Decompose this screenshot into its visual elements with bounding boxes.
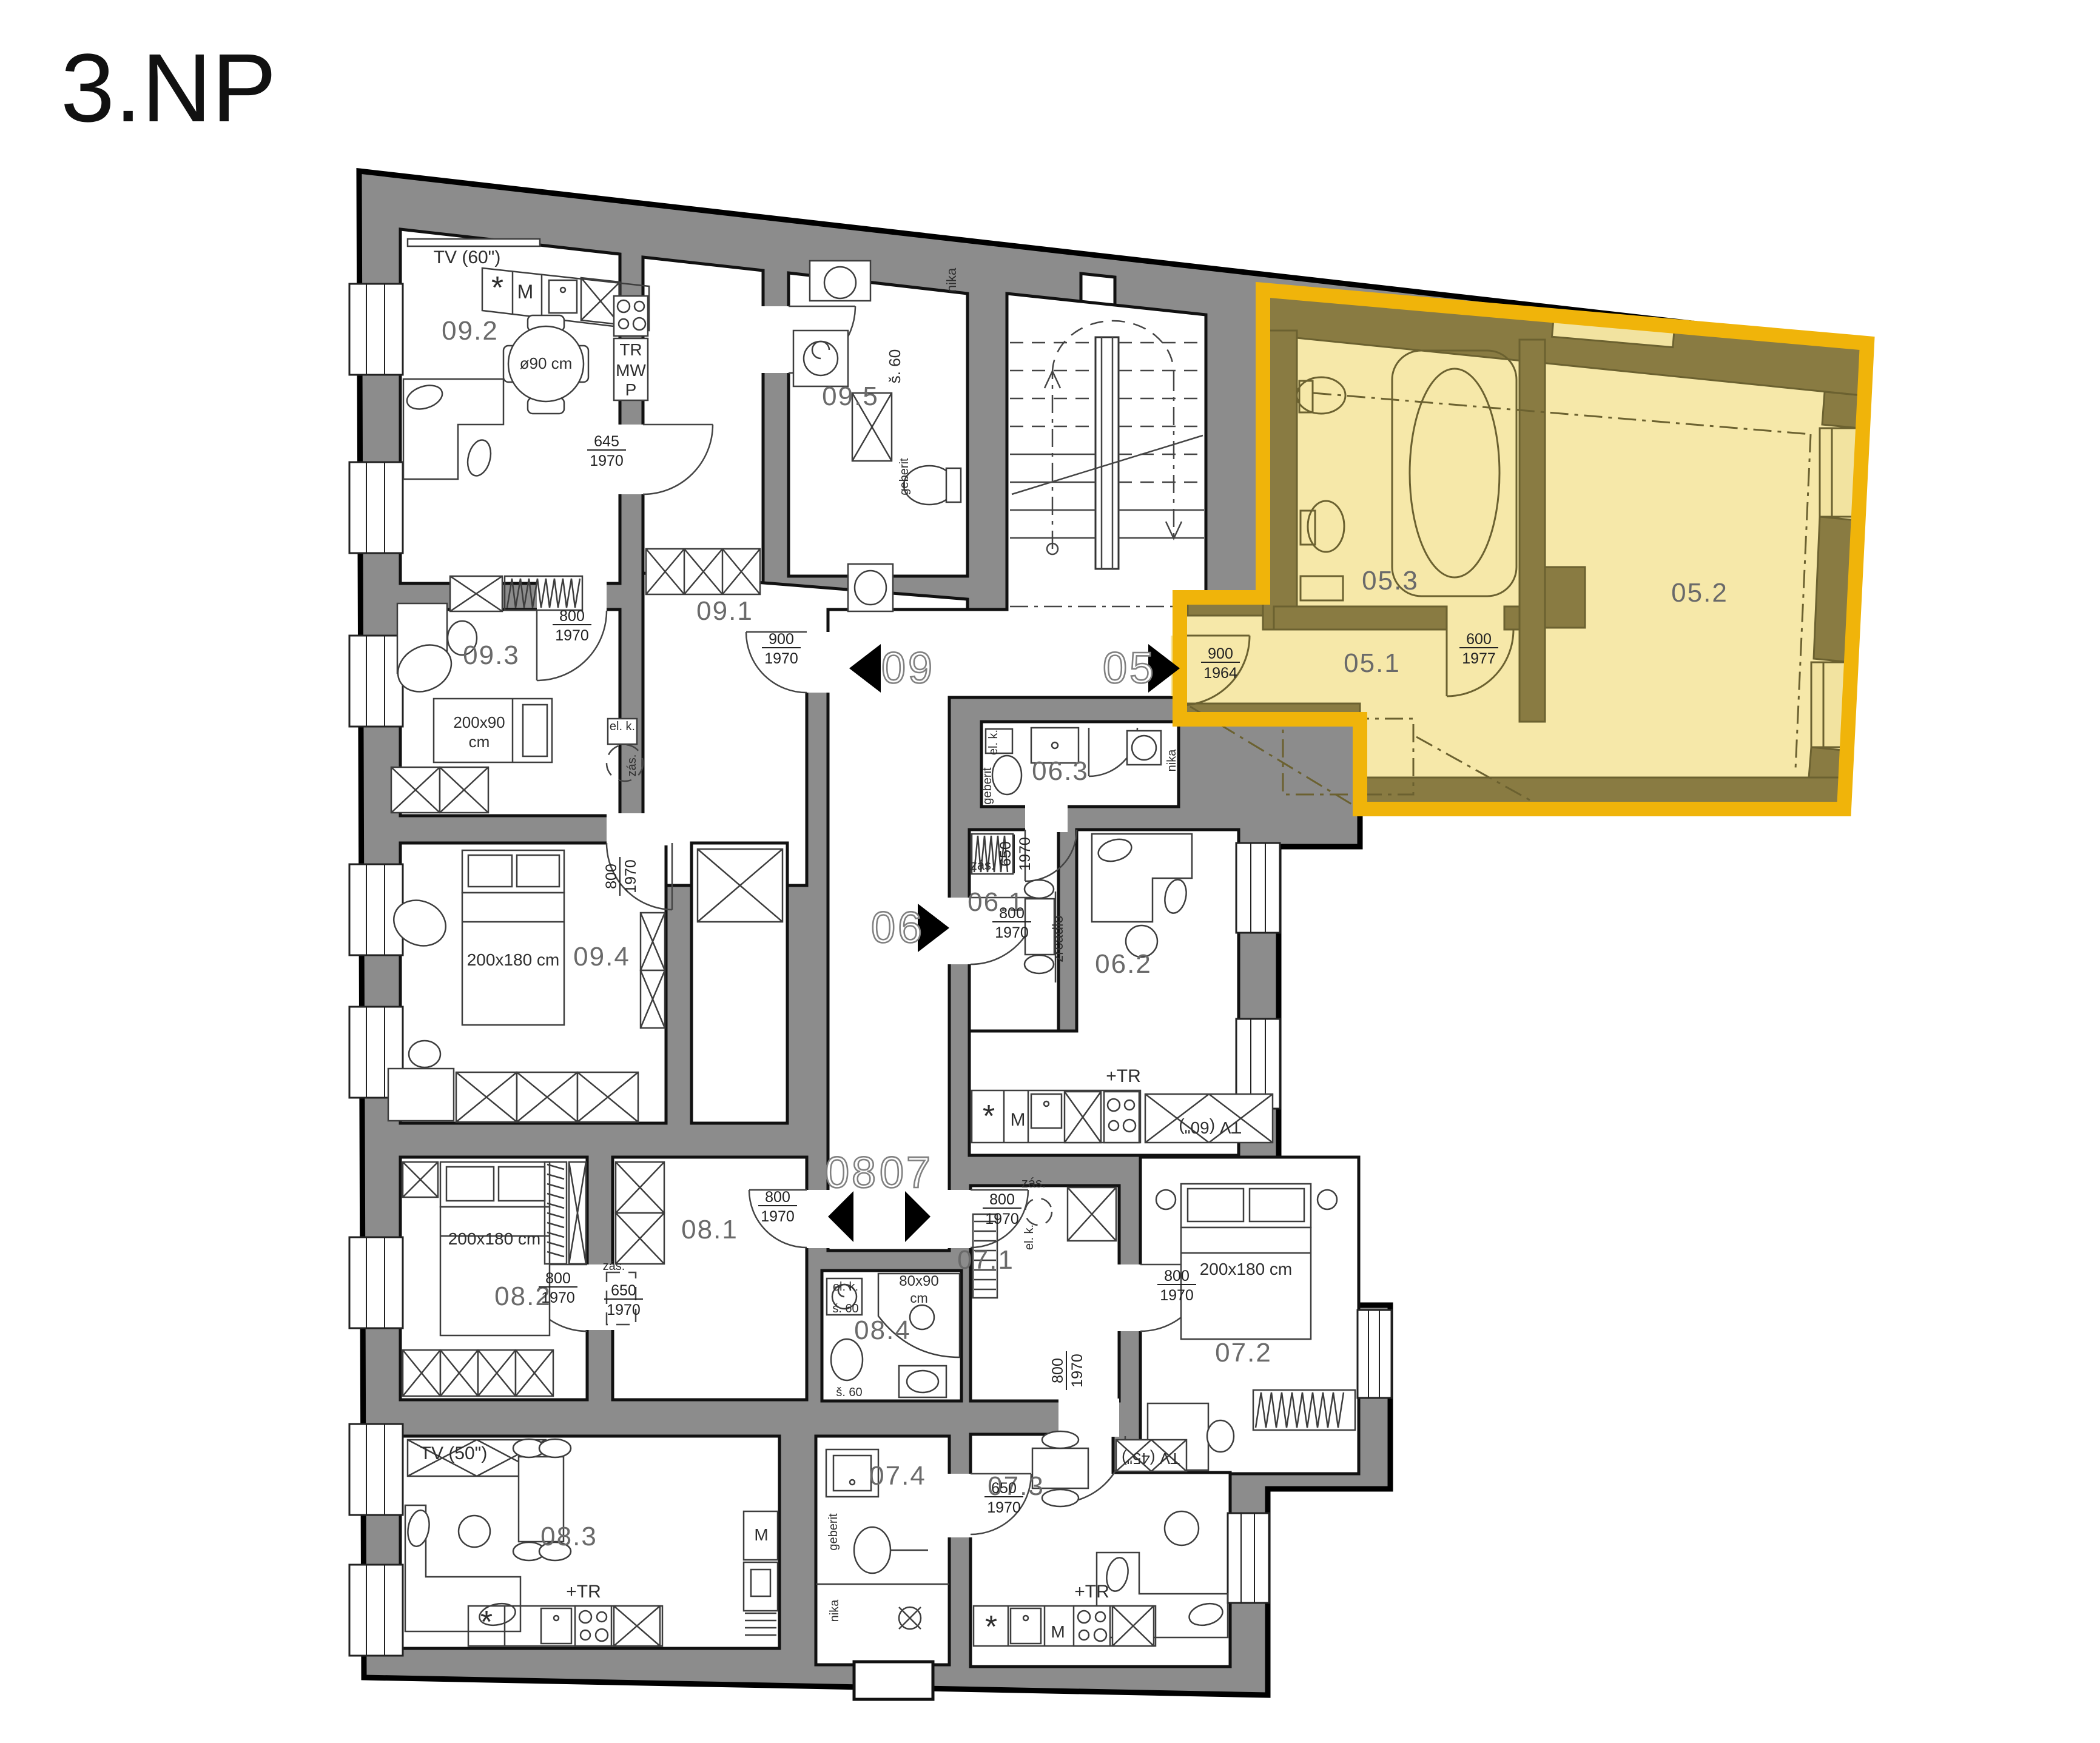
svg-text:800: 800 <box>603 864 620 889</box>
annotation: geberit <box>898 458 911 495</box>
svg-text:1970: 1970 <box>590 452 624 469</box>
room-label-09.2: 09.2 <box>442 316 499 346</box>
svg-text:800: 800 <box>1164 1268 1190 1285</box>
window-right-07-3 <box>1228 1513 1269 1603</box>
annotation: geberit <box>827 1513 840 1551</box>
annotation: * <box>985 1610 997 1645</box>
annotation: nika <box>1165 749 1179 772</box>
annotation: el. k. <box>1023 1224 1036 1250</box>
annotation: 200x180 cm <box>448 1229 541 1248</box>
annotation: nika <box>828 1599 841 1622</box>
svg-text:1970: 1970 <box>1017 837 1034 871</box>
annotation: TV (60") <box>434 247 501 267</box>
annotation: el. k. <box>610 720 635 733</box>
annotation: ø90 cm <box>520 354 573 372</box>
svg-text:800: 800 <box>559 608 585 625</box>
window-left-2 <box>349 462 403 553</box>
window-left-4 <box>349 864 403 955</box>
annotation: M <box>1011 1110 1026 1130</box>
svg-text:1970: 1970 <box>555 627 589 644</box>
svg-text:650: 650 <box>997 841 1014 867</box>
annotation: MW <box>616 361 646 380</box>
annotation: M <box>517 281 534 303</box>
window-left-3 <box>349 636 403 727</box>
room-09-2 <box>400 229 620 583</box>
room-label-08.1: 08.1 <box>681 1215 738 1244</box>
window-left-6 <box>349 1237 403 1328</box>
annotation: 200x180 cm <box>1200 1260 1293 1278</box>
window-left-7 <box>349 1424 403 1515</box>
annotation: TV (50") <box>420 1443 488 1463</box>
window-right-07-2 <box>1358 1310 1392 1398</box>
annotation: M <box>754 1525 768 1544</box>
annotation: TR <box>619 340 642 359</box>
annotation: 200x180 cm <box>467 950 560 969</box>
annotation: * <box>491 270 503 306</box>
svg-text:900: 900 <box>1208 645 1233 662</box>
room-label-07.1: 07.1 <box>957 1245 1014 1275</box>
room-07-4-niche <box>854 1662 933 1699</box>
entry-number-09: 09 <box>881 644 935 693</box>
room-label-09.1: 09.1 <box>696 596 753 626</box>
room-label-09.5: 09.5 <box>822 381 879 411</box>
svg-text:1970: 1970 <box>1069 1354 1086 1388</box>
room-label-08.3: 08.3 <box>540 1522 597 1551</box>
svg-text:1964: 1964 <box>1203 665 1237 682</box>
annotation: * <box>480 1605 493 1640</box>
svg-text:1970: 1970 <box>622 859 639 893</box>
annotation: cm <box>910 1291 927 1306</box>
annotation: 80x90 <box>899 1273 938 1289</box>
svg-text:1977: 1977 <box>1462 650 1496 667</box>
svg-text:800: 800 <box>999 905 1025 922</box>
annotation: el. k. <box>833 1280 858 1294</box>
svg-text:1970: 1970 <box>995 924 1029 941</box>
room-label-08.4: 08.4 <box>854 1315 911 1345</box>
window-left-8 <box>349 1565 403 1656</box>
room-label-06.2: 06.2 <box>1095 949 1152 979</box>
room-label-05.1: 05.1 <box>1344 648 1401 678</box>
entry-number-08: 08 <box>825 1149 878 1197</box>
svg-text:900: 900 <box>769 631 794 648</box>
svg-text:1970: 1970 <box>541 1289 575 1306</box>
hall-08-1 <box>616 1162 664 1264</box>
floorplan-page: 09.209.509.109.309.408.208.108.408.307.1… <box>0 0 2100 1743</box>
annotation: š. 60 <box>832 1302 858 1315</box>
svg-text:800: 800 <box>989 1191 1015 1208</box>
entry-number-05: 05 <box>1103 644 1156 693</box>
annotation: P <box>625 380 637 399</box>
annotation: +TR <box>566 1582 601 1602</box>
room-label-05.2: 05.2 <box>1671 578 1728 608</box>
svg-text:800: 800 <box>545 1270 571 1287</box>
svg-text:1970: 1970 <box>764 650 798 667</box>
svg-text:1970: 1970 <box>761 1208 795 1225</box>
annotation: TV (45") <box>1122 1449 1180 1468</box>
svg-text:800: 800 <box>1049 1358 1066 1383</box>
svg-text:650: 650 <box>991 1480 1017 1497</box>
svg-text:800: 800 <box>765 1189 790 1206</box>
annotation: 200x90 <box>453 713 505 731</box>
room-label-05.3: 05.3 <box>1362 566 1419 596</box>
floorplan-drawing: 09.209.509.109.309.408.208.108.408.307.1… <box>0 0 2100 1743</box>
annotation: geberit <box>981 767 994 805</box>
annotation: nika <box>944 267 959 292</box>
svg-text:1970: 1970 <box>607 1301 641 1318</box>
annotation: +TR <box>1106 1066 1141 1086</box>
room-label-09.4: 09.4 <box>573 942 630 972</box>
svg-text:600: 600 <box>1466 631 1492 648</box>
closet-09 <box>698 849 782 922</box>
annotation: +TR <box>1074 1582 1109 1602</box>
annotation: zás. <box>1021 1175 1046 1191</box>
annotation: TV (60") <box>1179 1118 1241 1137</box>
annotation: zás. <box>971 858 995 873</box>
room-label-06.3: 06.3 <box>1032 756 1089 786</box>
svg-text:650: 650 <box>611 1282 636 1299</box>
window-right-06-2-a <box>1236 843 1280 933</box>
svg-text:1970: 1970 <box>985 1211 1019 1227</box>
annotation: zás. <box>603 1260 625 1273</box>
annotation: * <box>983 1099 995 1134</box>
annotation: š. 60 <box>836 1386 862 1399</box>
room-label-07.2: 07.2 <box>1215 1338 1272 1368</box>
svg-text:1970: 1970 <box>987 1499 1021 1516</box>
floor-title: 3.NP <box>61 33 277 142</box>
annotation: zrcadlo <box>1050 915 1066 962</box>
room-label-07.4: 07.4 <box>869 1461 926 1491</box>
annotation: š. 60 <box>886 349 904 383</box>
svg-text:1970: 1970 <box>1160 1287 1194 1304</box>
tv-60-wall <box>408 239 540 246</box>
room-label-09.3: 09.3 <box>463 640 520 670</box>
svg-text:645: 645 <box>594 433 619 450</box>
annotation: M <box>1051 1622 1065 1641</box>
annotation: zás. <box>625 754 639 777</box>
wardrobe-lobby <box>646 549 760 594</box>
window-left-1 <box>349 284 403 375</box>
annotation: el. k. <box>987 730 1000 755</box>
annotation: cm <box>469 733 490 751</box>
entry-number-06: 06 <box>871 904 924 952</box>
entry-number-07: 07 <box>880 1149 933 1197</box>
